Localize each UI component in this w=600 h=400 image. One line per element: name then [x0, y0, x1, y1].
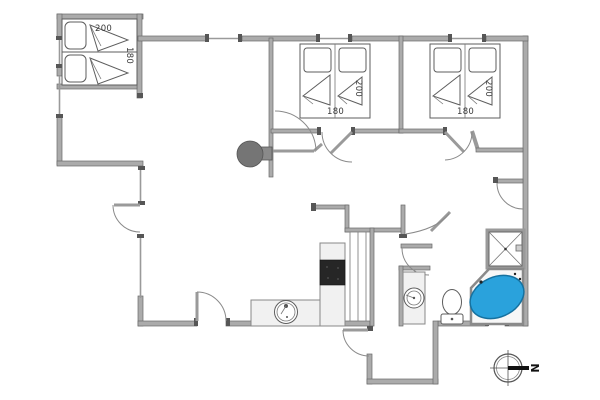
pillow — [434, 48, 461, 72]
floor-plan: 200 180 180 200 180 200 — [0, 0, 600, 400]
bed-length-label: 200 — [353, 80, 363, 97]
pillow — [65, 22, 86, 49]
washing-machine — [403, 272, 425, 324]
pillow — [469, 48, 496, 72]
kitchen-sink — [275, 301, 298, 324]
door-leaf — [331, 132, 352, 153]
spa-bath — [463, 267, 530, 326]
bed-length-label: 200 — [483, 80, 493, 97]
bed-length-label: 200 — [95, 24, 112, 34]
bedroom-annex: 200 180 — [62, 19, 137, 85]
toilet — [441, 290, 463, 325]
door-leaf — [445, 132, 464, 152]
floor-plan-canvas: 200 180 180 200 180 200 — [0, 0, 600, 400]
kitchen — [251, 243, 345, 326]
bed-width-label: 180 — [124, 47, 134, 64]
shower-door-knob — [516, 245, 522, 251]
cooktop — [320, 260, 345, 285]
wardrobe-stripes — [350, 232, 366, 321]
bedroom-middle: 180 200 — [300, 44, 370, 118]
pillow — [65, 55, 86, 82]
wood-stove-body — [237, 141, 263, 167]
compass: N — [490, 350, 541, 386]
pillow — [339, 48, 366, 72]
wood-stove — [237, 141, 272, 167]
shower-cabin — [487, 230, 524, 268]
bed-width-label: 180 — [327, 107, 344, 117]
pillow — [304, 48, 331, 72]
bedroom-right: 180 200 — [430, 44, 500, 118]
bed-width-label: 180 — [457, 107, 474, 117]
north-label: N — [528, 363, 541, 372]
